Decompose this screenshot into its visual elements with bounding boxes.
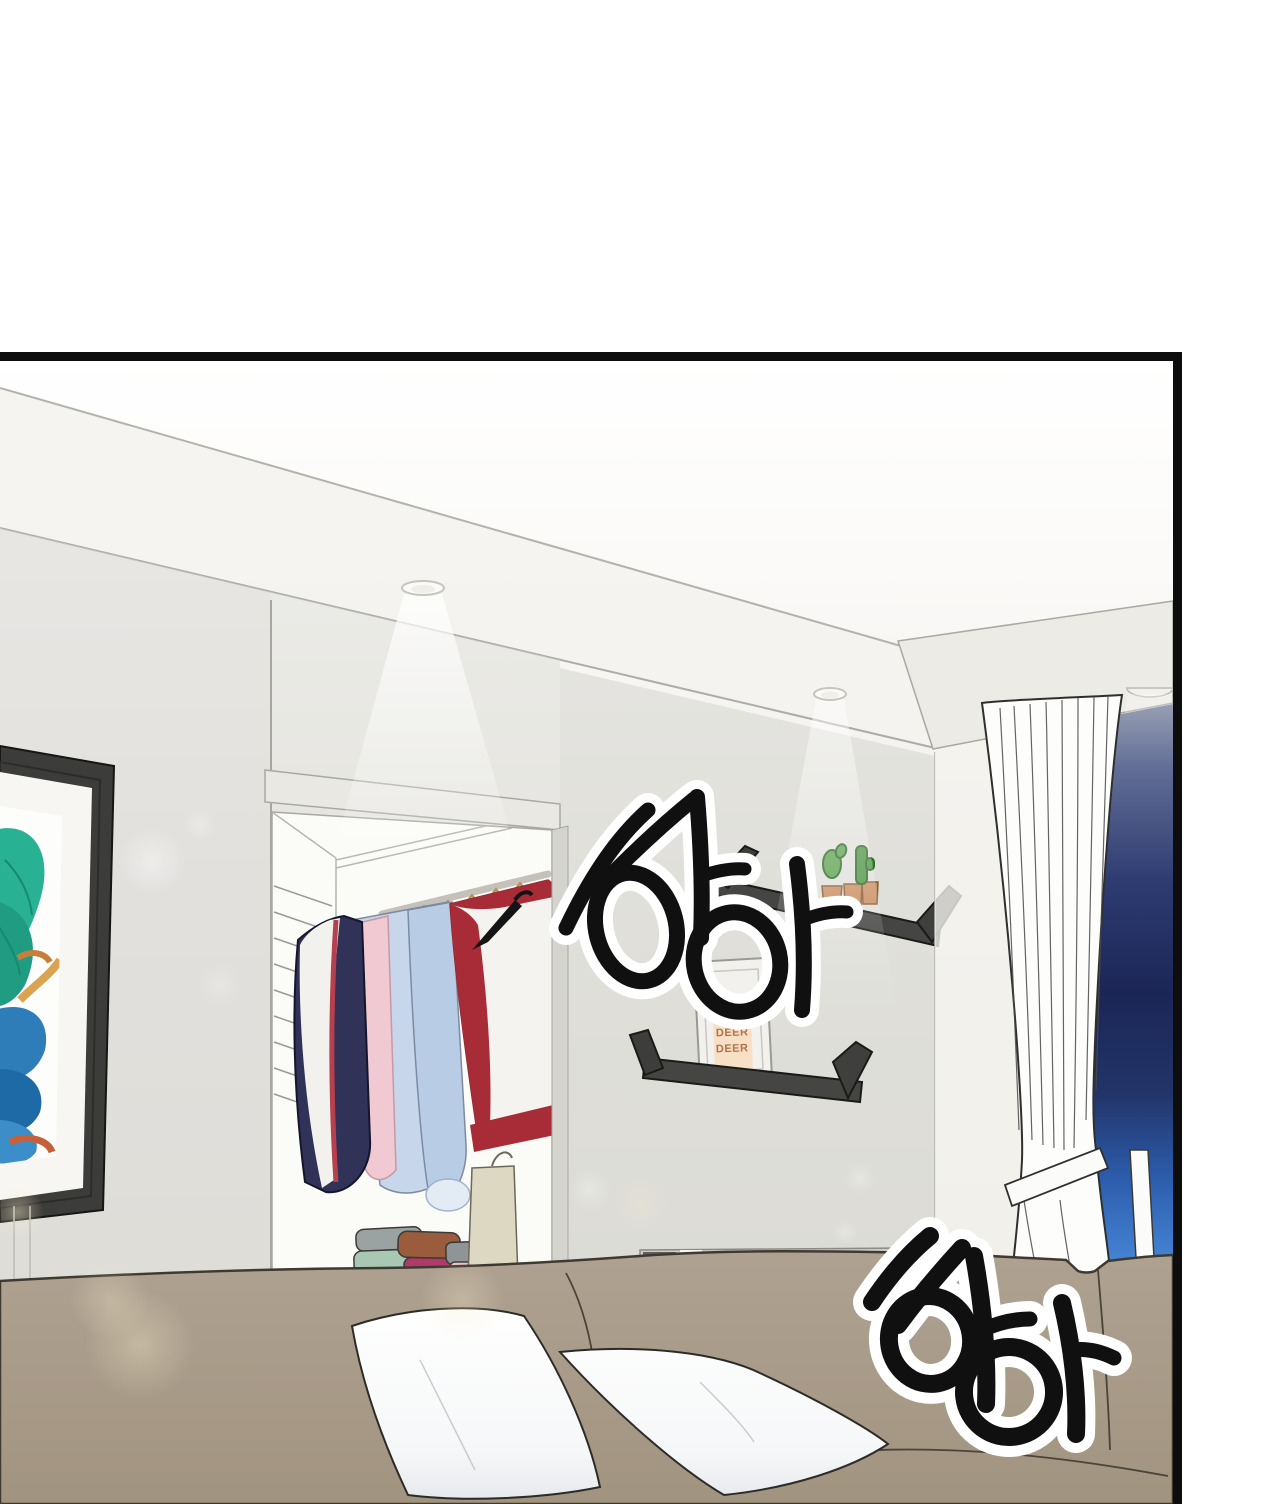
room-scene: DEER DEER DEER (0, 361, 1173, 1504)
wall-artwork (0, 746, 114, 1222)
denim-cuff (426, 1179, 470, 1211)
deer-card-line: DEER (716, 1042, 749, 1055)
comic-panel: DEER DEER DEER (0, 352, 1182, 1504)
comic-page: DEER DEER DEER (0, 0, 1280, 1504)
